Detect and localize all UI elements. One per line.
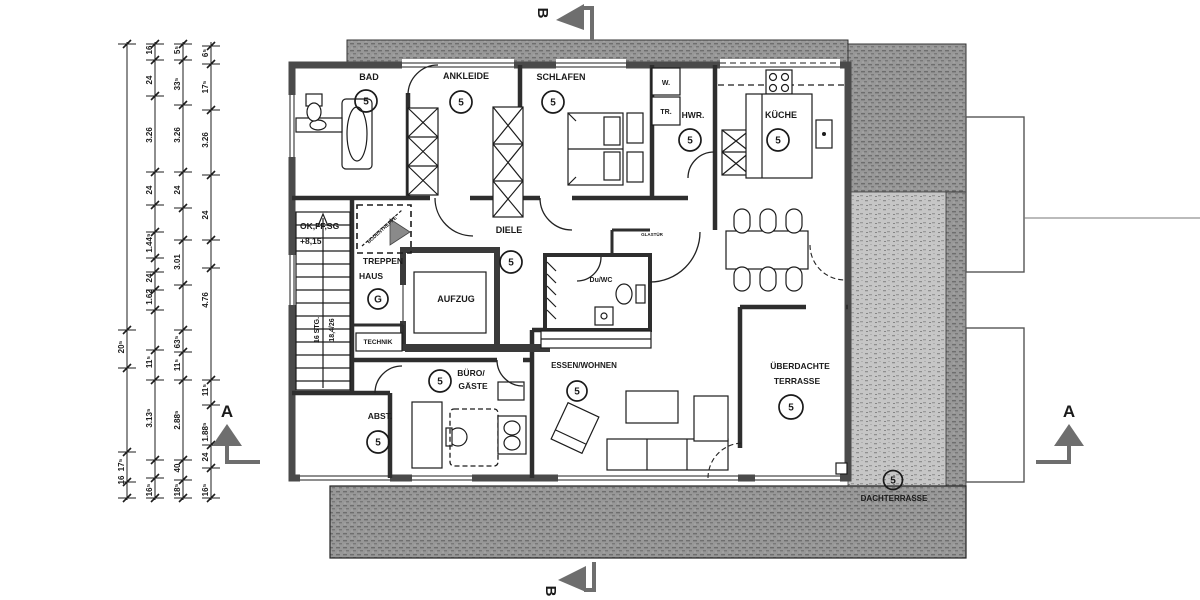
room-label-essen-wohnen: ESSEN/WOHNEN <box>551 361 617 370</box>
dimension-value: 2.88⁵ <box>173 410 182 430</box>
dimension-value: 3.26 <box>173 127 182 143</box>
dimension-value: 20⁵ <box>117 340 126 353</box>
section-letter: B <box>534 8 551 19</box>
badge-number: 5 <box>550 98 556 109</box>
dimension-value: 3.26 <box>201 132 210 148</box>
dimension-value: 24 <box>145 185 154 194</box>
dimension-value: 16 <box>145 45 154 54</box>
room-label-ueberdachte-terrasse: ÜBERDACHTE <box>770 361 830 371</box>
dimension-value: 16⁵ <box>201 483 210 496</box>
room-label-washer: W. <box>662 80 670 87</box>
shower-tray <box>595 307 613 325</box>
room-label-schlafen: SCHLAFEN <box>537 72 586 82</box>
section-letter: B <box>542 586 559 597</box>
dimension-value: 16 <box>117 475 126 484</box>
room-label-treppenhaus-2: HAUS <box>359 271 383 281</box>
dimension-value: 16⁵ <box>145 483 154 496</box>
section-marker-b-bottom: B <box>542 562 594 597</box>
section-letter: A <box>221 402 233 421</box>
badge-number: 5 <box>458 98 464 109</box>
section-letter: A <box>1063 402 1075 421</box>
floorplan-page: 165⁵6⁵2433⁵17⁵3.263.263.262424241.44⁵3.0… <box>0 0 1200 600</box>
badge-number: 5 <box>775 136 781 147</box>
room-label-bad: BAD <box>359 72 379 82</box>
coffee-table <box>626 391 678 423</box>
sofa-right <box>694 396 728 441</box>
dimension-value: 6⁵ <box>201 49 210 57</box>
room-badge-essen-wohnen: 5 <box>567 381 587 401</box>
room-label-level-note-2: +8,15 <box>300 236 322 246</box>
dimension-value: 11⁵ <box>201 384 210 396</box>
room-label-kueche: KÜCHE <box>765 110 797 120</box>
dining-table <box>726 231 808 269</box>
annex-box-upper <box>966 117 1024 272</box>
roof-block-top-right <box>848 44 966 192</box>
dimension-value: 24 <box>201 452 210 461</box>
nightstand-2 <box>627 152 643 182</box>
badge-number: 5 <box>437 377 443 388</box>
dimension-value: 11⁵ <box>145 356 154 368</box>
room-label-ankleide: ANKLEIDE <box>443 71 489 81</box>
dimension-value: 24 <box>145 75 154 84</box>
room-label-buero-2: GÄSTE <box>458 381 488 391</box>
badge-number: 5 <box>687 136 693 147</box>
room-badge-schlafen: 5 <box>542 91 564 113</box>
room-badge-treppenhaus: G <box>368 289 388 309</box>
badge-number: 5 <box>363 97 369 108</box>
wardrobe-ankleide-left <box>408 108 438 195</box>
room-label-diele: DIELE <box>496 225 523 235</box>
dimension-value: 3.01 <box>173 254 182 270</box>
room-label-dryer: TR. <box>660 109 671 116</box>
toilet <box>307 103 321 121</box>
room-label-technik: TECHNIK <box>364 339 393 346</box>
living-furniture <box>541 331 728 470</box>
dimension-value: 3.13⁵ <box>145 408 154 428</box>
badge-number: G <box>374 295 382 306</box>
section-marker-a-right: A <box>1036 402 1084 462</box>
dimension-value: 1.62 <box>145 289 154 305</box>
desk <box>412 402 442 468</box>
dimension-value: 33⁵ <box>173 77 182 90</box>
dimension-value: 17⁵ <box>117 458 126 471</box>
room-label-glastuer: GLASTÜR <box>641 231 663 237</box>
dimension-value: 24 <box>145 273 154 282</box>
dimension-value: 11⁵ <box>173 359 182 371</box>
room-badge-diele: 5 <box>500 251 522 273</box>
room-label-abst: ABST. <box>368 411 393 421</box>
room-label-stair-note-1: 16 STG. <box>314 317 321 343</box>
annex-box-lower <box>966 328 1024 482</box>
wardrobe-ankleide-mid <box>493 107 523 217</box>
room-label-buero: BÜRO/ <box>457 368 485 378</box>
room-badge-ankleide: 5 <box>450 91 472 113</box>
terrace-column <box>836 463 847 474</box>
armchair <box>551 403 599 454</box>
dimension-value: 24 <box>201 210 210 219</box>
room-label-hwr: HWR. <box>682 110 705 120</box>
dimension-chains: 165⁵6⁵2433⁵17⁵3.263.263.262424241.44⁵3.0… <box>117 40 220 502</box>
room-label-treppenhaus: TREPPEN <box>363 256 403 266</box>
badge-number: 5 <box>508 258 514 269</box>
dimension-value: 3.26 <box>145 127 154 143</box>
badge-number: 5 <box>375 438 381 449</box>
room-label-dachterrasse: DACHTERRASSE <box>861 494 928 503</box>
badge-number: 5 <box>890 476 896 487</box>
dimension-value: 4.76 <box>201 292 210 308</box>
section-marker-b-top: B <box>534 4 592 40</box>
shaft-base-band <box>405 344 550 352</box>
wc-toilet <box>616 284 632 304</box>
dimension-value: 63⁵ <box>173 335 182 348</box>
floorplan-canvas: 165⁵6⁵2433⁵17⁵3.263.263.262424241.44⁵3.0… <box>0 0 1200 600</box>
dimension-value: 40 <box>173 463 182 472</box>
room-label-duwc: Du/WC <box>590 277 613 284</box>
dimension-value: 1.88⁵ <box>201 422 210 442</box>
room-label-stair-note-2: 18,4/26 <box>329 318 336 341</box>
double-bed <box>568 113 643 185</box>
dimension-value: 24 <box>173 185 182 194</box>
dimension-value: 18⁵ <box>173 483 182 496</box>
room-badge-buero: 5 <box>429 370 451 392</box>
section-marker-a-left: A <box>212 402 260 462</box>
room-label-level-note-1: OK,FF,SG <box>300 221 340 231</box>
room-label-ueberdachte-terrasse-2: TERRASSE <box>774 376 821 386</box>
dimension-value: 17⁵ <box>201 80 210 93</box>
dining-set <box>726 209 808 291</box>
badge-number: 5 <box>788 403 794 414</box>
room-badge-hwr: 5 <box>679 129 701 151</box>
badge-number: 5 <box>574 387 580 398</box>
nightstand-1 <box>627 113 643 143</box>
room-badge-ueberdachte-terrasse: 5 <box>779 395 803 419</box>
room-label-aufzug: AUFZUG <box>437 294 475 304</box>
office-furniture <box>412 382 526 468</box>
room-badge-abst: 5 <box>367 431 389 453</box>
dimension-value: 5⁵ <box>173 46 182 54</box>
dimension-value: 1.44⁵ <box>145 233 154 253</box>
